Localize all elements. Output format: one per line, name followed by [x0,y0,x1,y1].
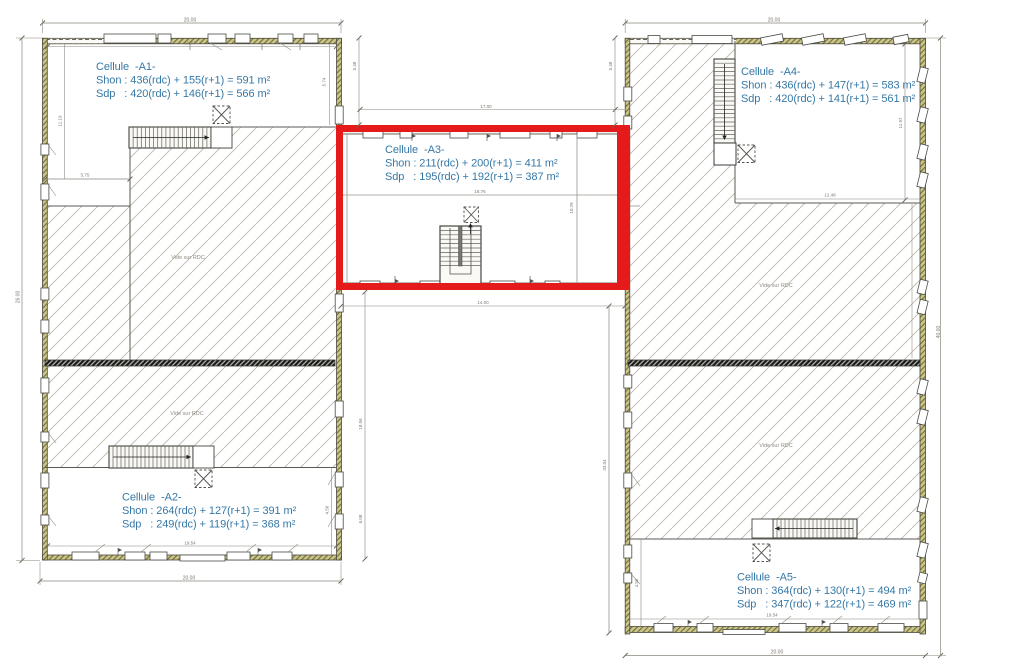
svg-text:40.00: 40.00 [936,326,942,339]
svg-text:5.75: 5.75 [81,173,90,178]
svg-text:5.74: 5.74 [322,77,327,86]
svg-text:5.48: 5.48 [608,61,613,70]
svg-text:Cellule -A1-: Cellule -A1- [96,61,156,73]
svg-text:Vide sur RDC: Vide sur RDC [170,411,204,417]
svg-text:12.48: 12.48 [824,193,836,198]
svg-text:18.76: 18.76 [474,189,486,194]
svg-text:Shon : 211(rdc) + 200(r+1) = 4: Shon : 211(rdc) + 200(r+1) = 411 m² [385,158,558,170]
svg-text:Vide sur RDC: Vide sur RDC [171,255,205,261]
svg-text:11.97: 11.97 [898,117,903,128]
svg-text:Shon : 436(rdc) + 155(r+1) = 5: Shon : 436(rdc) + 155(r+1) = 591 m² [96,75,271,87]
svg-text:5.48: 5.48 [352,61,357,70]
svg-text:20.00: 20.00 [768,18,781,24]
svg-text:Vide sur RDC: Vide sur RDC [759,283,793,289]
svg-text:6.08: 6.08 [358,514,363,523]
svg-text:Cellule -A3-: Cellule -A3- [385,144,445,156]
svg-text:17.00: 17.00 [480,104,492,109]
svg-text:4.56: 4.56 [325,505,330,514]
svg-text:18.56: 18.56 [358,418,363,430]
svg-text:Sdp : 347(rdc) + 122(r+1) =: Sdp : 347(rdc) + 122(r+1) = 469 m² [737,599,912,611]
svg-text:10.78: 10.78 [569,202,574,214]
svg-text:Cellule -A5-: Cellule -A5- [737,572,797,584]
svg-text:19.54: 19.54 [184,41,196,46]
svg-text:14.00: 14.00 [477,300,489,305]
svg-text:19.54: 19.54 [184,541,196,546]
svg-text:Shon : 364(rdc) + 130(r+1) = 4: Shon : 364(rdc) + 130(r+1) = 494 m² [737,585,912,597]
svg-text:20.00: 20.00 [184,18,197,24]
svg-text:Shon : 436(rdc) + 147(r+1) = 5: Shon : 436(rdc) + 147(r+1) = 583 m² [741,80,916,92]
svg-text:Sdp : 195(rdc) + 192(r+1) =: Sdp : 195(rdc) + 192(r+1) = 387 m² [385,171,560,183]
svg-text:26.00: 26.00 [16,291,22,304]
svg-text:Shon : 264(rdc) + 127(r+1) = 3: Shon : 264(rdc) + 127(r+1) = 391 m² [122,505,297,517]
svg-text:4.56: 4.56 [634,578,639,587]
svg-text:Sdp : 420(rdc) + 146(r+1) =: Sdp : 420(rdc) + 146(r+1) = 566 m² [96,88,271,100]
svg-text:19.54: 19.54 [766,613,778,618]
svg-text:33.04: 33.04 [602,459,607,471]
svg-text:Cellule -A2-: Cellule -A2- [122,492,182,504]
svg-text:11.19: 11.19 [58,115,63,126]
svg-text:Cellule -A4-: Cellule -A4- [741,66,801,78]
svg-text:Vide sur RDC: Vide sur RDC [759,443,793,449]
svg-text:Sdp : 420(rdc) + 141(r+1) =: Sdp : 420(rdc) + 141(r+1) = 561 m² [741,93,916,105]
svg-text:20.00: 20.00 [771,650,784,656]
svg-text:20.00: 20.00 [183,576,196,582]
svg-text:Sdp : 249(rdc) + 119(r+1) =: Sdp : 249(rdc) + 119(r+1) = 368 m² [122,519,296,531]
